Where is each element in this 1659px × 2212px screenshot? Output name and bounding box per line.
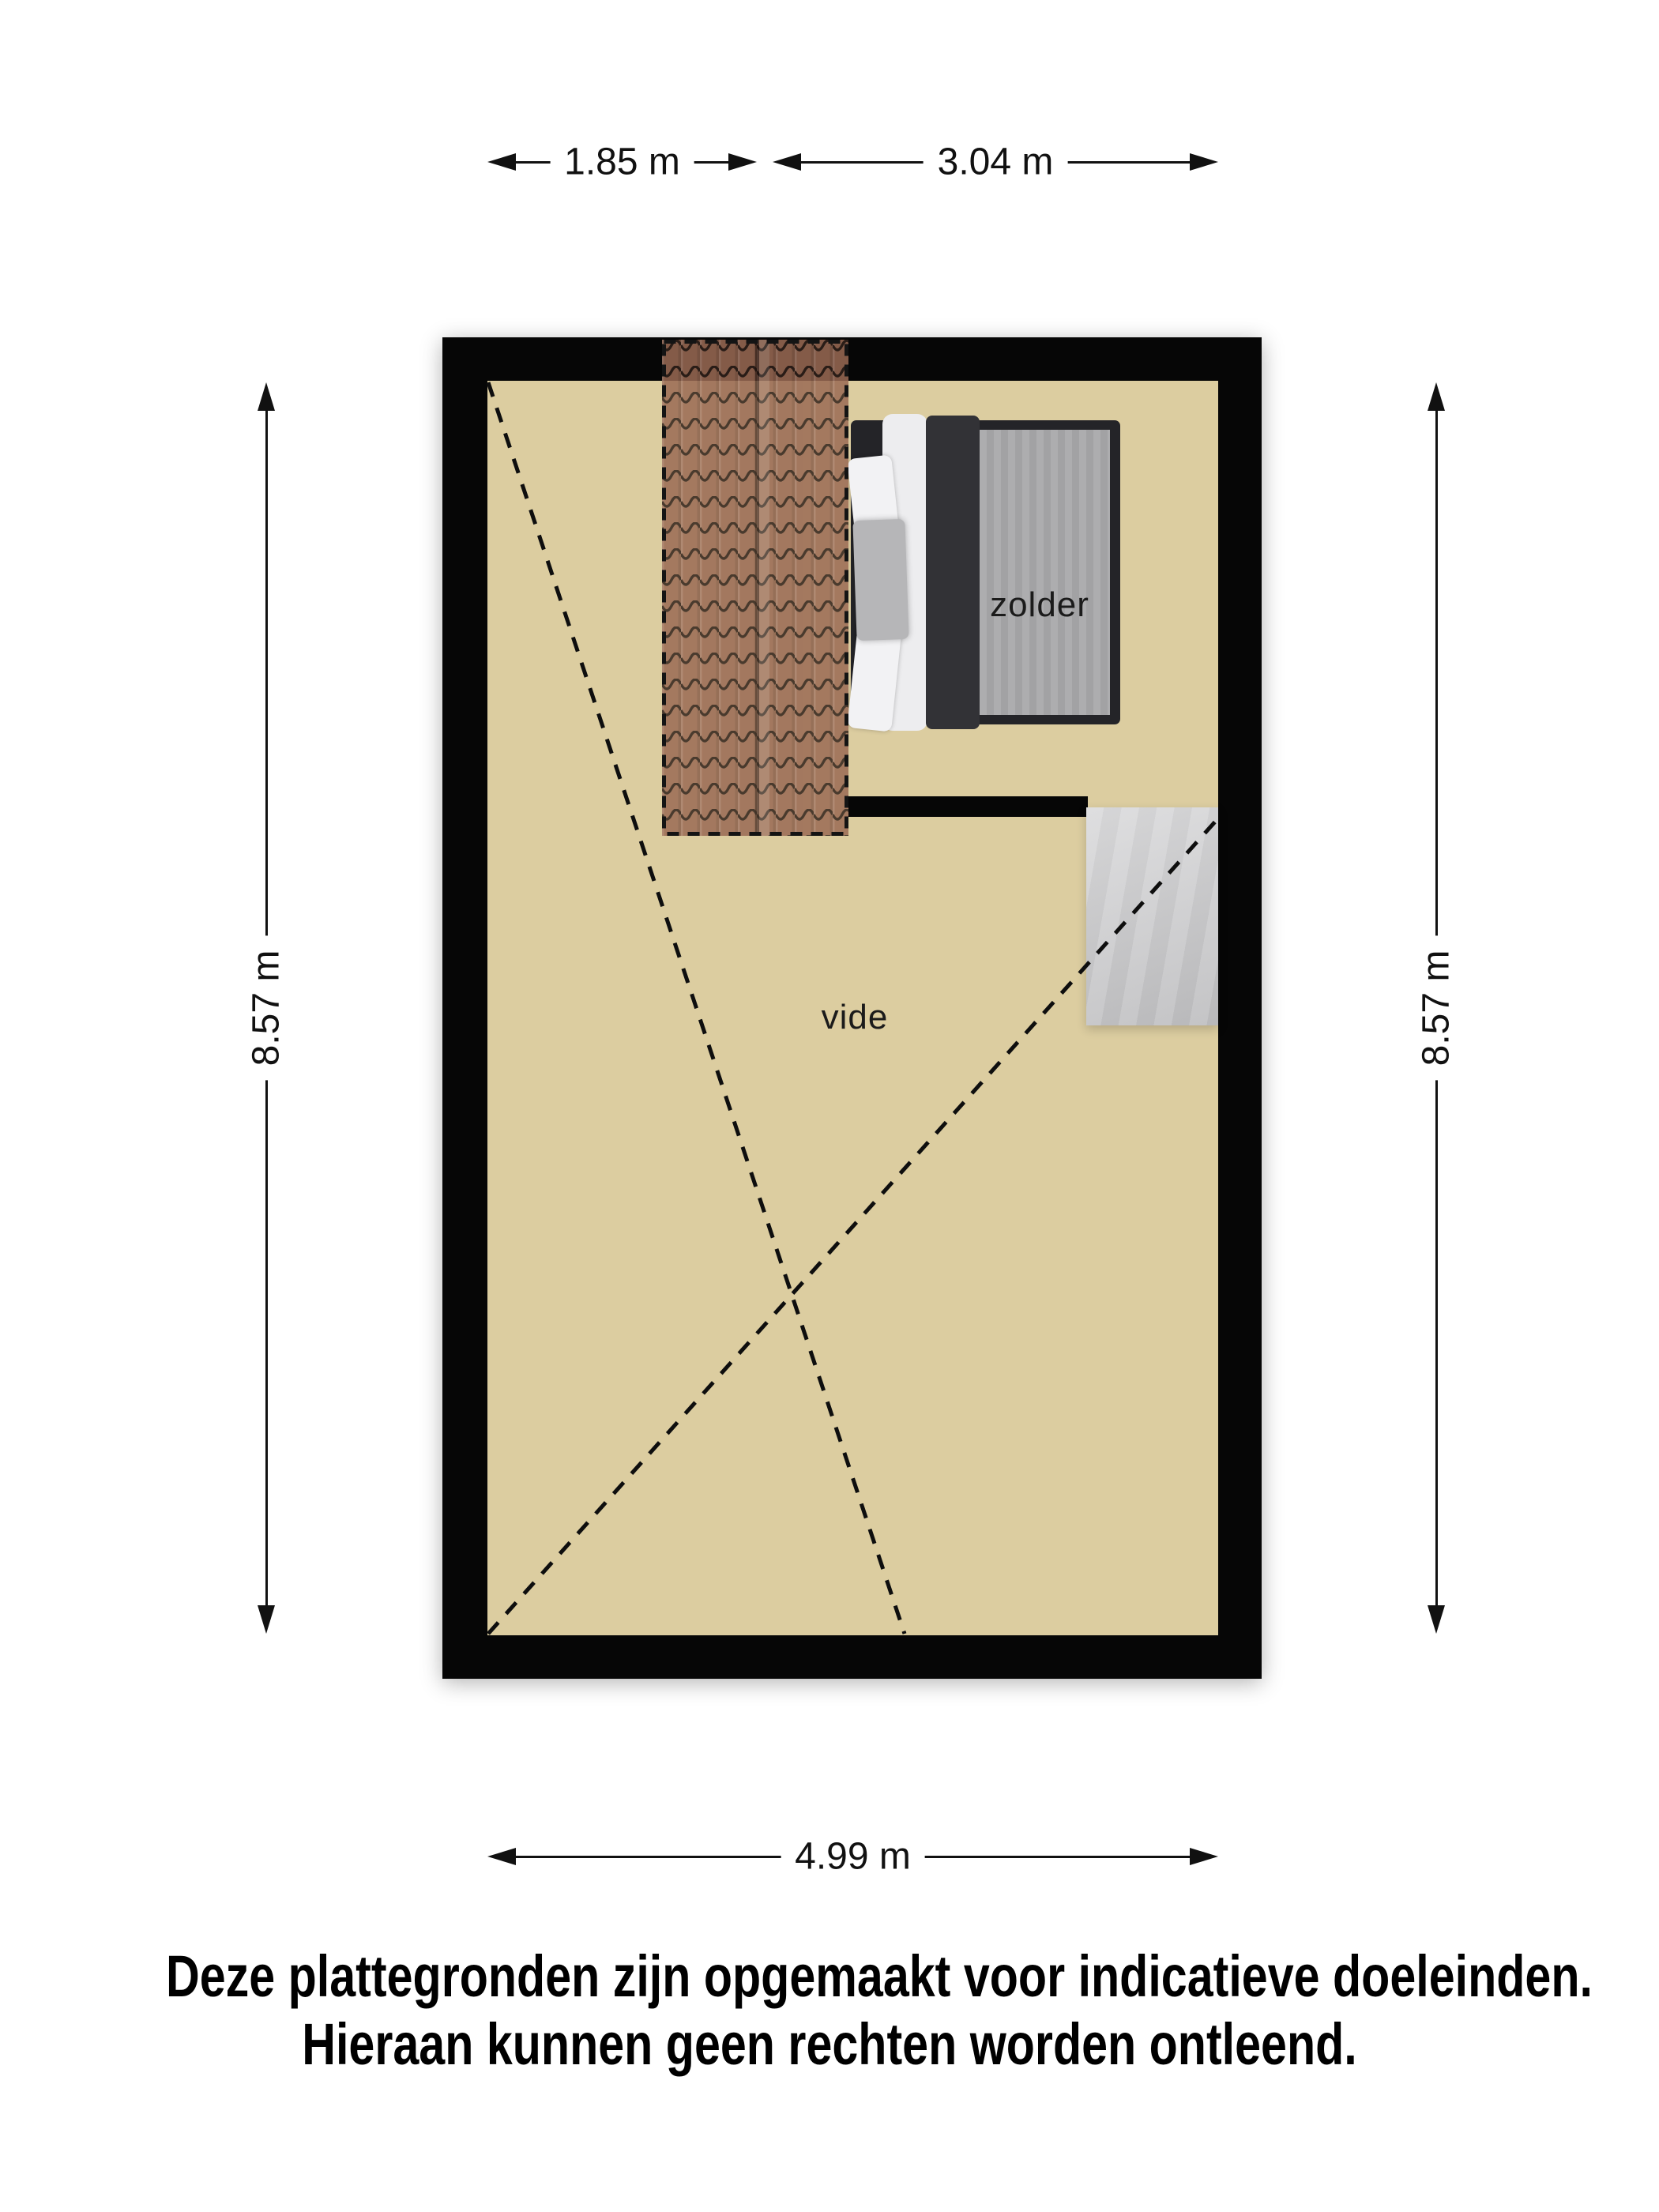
- dimension-right: 8.57 m: [1408, 382, 1465, 1634]
- arrowhead-down-icon: [1428, 1605, 1445, 1634]
- bed-blanket-fold: [926, 416, 980, 729]
- dimension-label: 1.85 m: [550, 141, 694, 184]
- arrowhead-down-icon: [258, 1605, 275, 1634]
- arrowhead-up-icon: [258, 382, 275, 411]
- dimension-top-left: 1.85 m: [487, 134, 757, 190]
- arrowhead-left-icon: [487, 153, 516, 171]
- dimension-bottom: 4.99 m: [487, 1828, 1218, 1885]
- floorplan-page: zolder vide 1.85 m 3.04 m 8.57 m 8.57 m …: [0, 0, 1659, 2212]
- dimension-left: 8.57 m: [238, 382, 295, 1634]
- arrowhead-right-icon: [728, 153, 757, 171]
- roof-ridge-line: [755, 340, 759, 836]
- bed: [851, 420, 1120, 724]
- bed-blanket: [980, 430, 1110, 715]
- disclaimer: Deze plattegronden zijn opgemaakt voor i…: [166, 1943, 1493, 2078]
- disclaimer-line-2: Hieraan kunnen geen rechten worden ontle…: [166, 2011, 1493, 2078]
- arrowhead-right-icon: [1190, 153, 1218, 171]
- room-label-vide: vide: [822, 998, 889, 1037]
- dimension-label: 8.57 m: [1415, 936, 1458, 1081]
- arrowhead-up-icon: [1428, 382, 1445, 411]
- dimension-top-right: 3.04 m: [773, 134, 1218, 190]
- roof-tiles-texture: [662, 340, 848, 836]
- interior-wall: [848, 796, 1088, 817]
- dimension-label: 4.99 m: [781, 1835, 925, 1879]
- roof-overlay: [662, 340, 848, 836]
- bed-pillow-gray: [852, 519, 908, 641]
- room-label-zolder: zolder: [990, 585, 1089, 625]
- staircase: [1086, 807, 1218, 1025]
- arrowhead-right-icon: [1190, 1848, 1218, 1865]
- arrowhead-left-icon: [773, 153, 801, 171]
- disclaimer-line-1: Deze plattegronden zijn opgemaakt voor i…: [166, 1943, 1493, 2011]
- dimension-label: 3.04 m: [924, 141, 1068, 184]
- arrowhead-left-icon: [487, 1848, 516, 1865]
- dimension-label: 8.57 m: [245, 936, 288, 1081]
